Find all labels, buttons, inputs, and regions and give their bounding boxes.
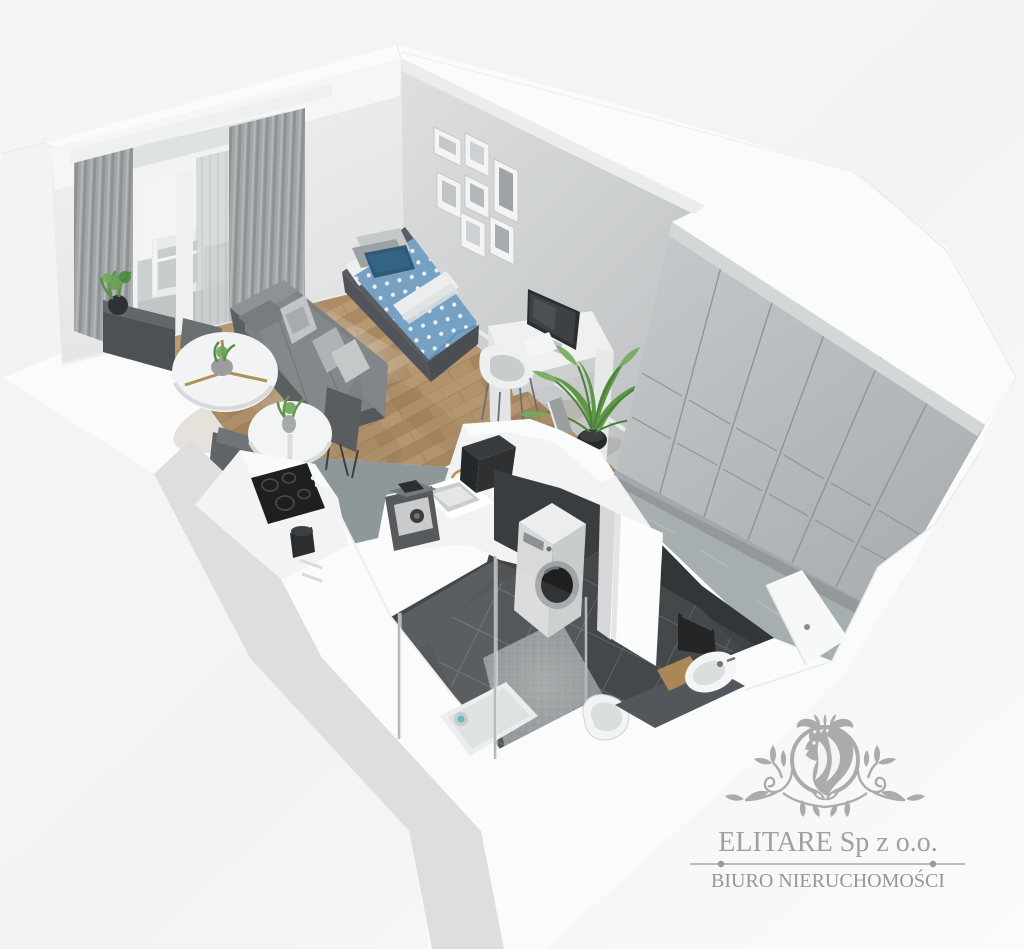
svg-text:ELITARE Sp z o.o.: ELITARE Sp z o.o. — [718, 827, 937, 858]
svg-text:BIURO NIERUCHOMOŚCI: BIURO NIERUCHOMOŚCI — [711, 868, 945, 892]
